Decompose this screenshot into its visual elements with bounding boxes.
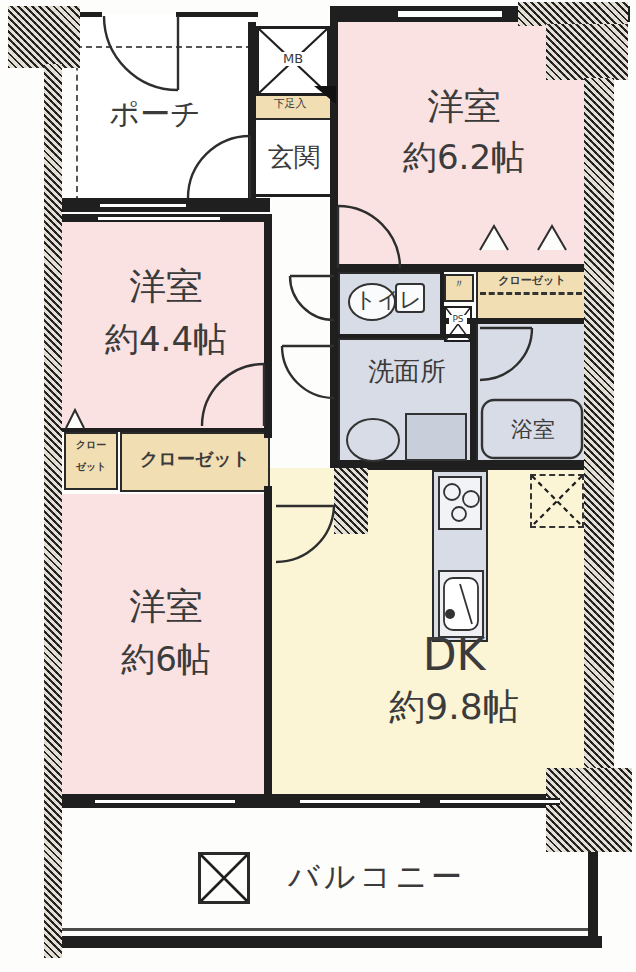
label-room6-size: 約6帖: [98, 642, 234, 678]
wall-pillar-dk: [334, 468, 368, 534]
door-arc-toilet: [290, 276, 334, 320]
label-bathroom: 浴室: [508, 418, 558, 441]
wall-block-top-right-bar: [518, 2, 628, 26]
label-dk-name: DK: [398, 632, 510, 678]
label-room6-name: 洋室: [90, 588, 242, 627]
label-pipe-space: PS: [449, 315, 467, 324]
label-entrance: 玄関: [260, 144, 328, 171]
wall-left-column: [44, 64, 62, 958]
window: [95, 798, 235, 805]
wall-block-bottom-right: [546, 768, 632, 852]
label-dk-size: 約9.8帖: [348, 688, 560, 726]
balcony-x-box: [198, 852, 250, 904]
label-toilet: トイレ: [342, 288, 434, 311]
wall: [330, 272, 338, 468]
kitchen-sink: [438, 570, 484, 638]
porch-dashed-line: [76, 46, 252, 48]
floor-plan: ポーチ 玄関 下足入 MB 洋室 約6.2帖 クローゼット 〃 PS トイレ 洗…: [0, 0, 636, 972]
wall: [440, 272, 444, 338]
label-closet-small-2: ゼット: [68, 462, 114, 473]
label-ditto: 〃: [450, 278, 468, 291]
room-bathroom: [476, 322, 588, 464]
window: [398, 9, 502, 19]
label-room62-size: 約6.2帖: [374, 140, 554, 176]
label-room44-name: 洋室: [90, 268, 242, 307]
closet-top-right-dashed: [480, 292, 582, 295]
stove: [438, 476, 482, 530]
balcony-inner-rail: [62, 928, 592, 931]
window: [440, 798, 560, 805]
window: [100, 202, 186, 209]
wall-block-top-left: [8, 6, 80, 68]
wall: [176, 12, 258, 17]
door-arc-washroom: [282, 346, 334, 398]
wall: [62, 428, 272, 432]
label-closet-top: クローゼット: [486, 275, 578, 287]
wall: [338, 334, 472, 338]
wall: [470, 322, 476, 468]
label-closet-mid: クローゼット: [126, 450, 264, 469]
window: [300, 798, 420, 805]
wall: [264, 486, 272, 804]
wall: [254, 194, 334, 197]
wall-right-column: [584, 78, 614, 772]
wall: [48, 936, 602, 948]
label-shoe-box: 下足入: [262, 98, 318, 110]
label-room62-name: 洋室: [388, 88, 540, 127]
wall: [264, 214, 272, 438]
label-closet-small-1: クロー: [68, 440, 114, 451]
window: [98, 215, 220, 222]
label-balcony: バルコニー: [272, 860, 482, 893]
wall: [330, 264, 588, 272]
wall-block-top-right: [546, 24, 628, 80]
label-room44-size: 約4.4帖: [76, 322, 256, 358]
label-washroom: 洗面所: [348, 358, 466, 385]
label-porch: ポーチ: [90, 98, 220, 130]
wall: [334, 460, 588, 470]
wall: [330, 22, 338, 272]
wall: [248, 22, 256, 200]
label-meter-box: MB: [278, 52, 308, 66]
wall: [588, 846, 598, 946]
fridge-space: [530, 474, 584, 528]
